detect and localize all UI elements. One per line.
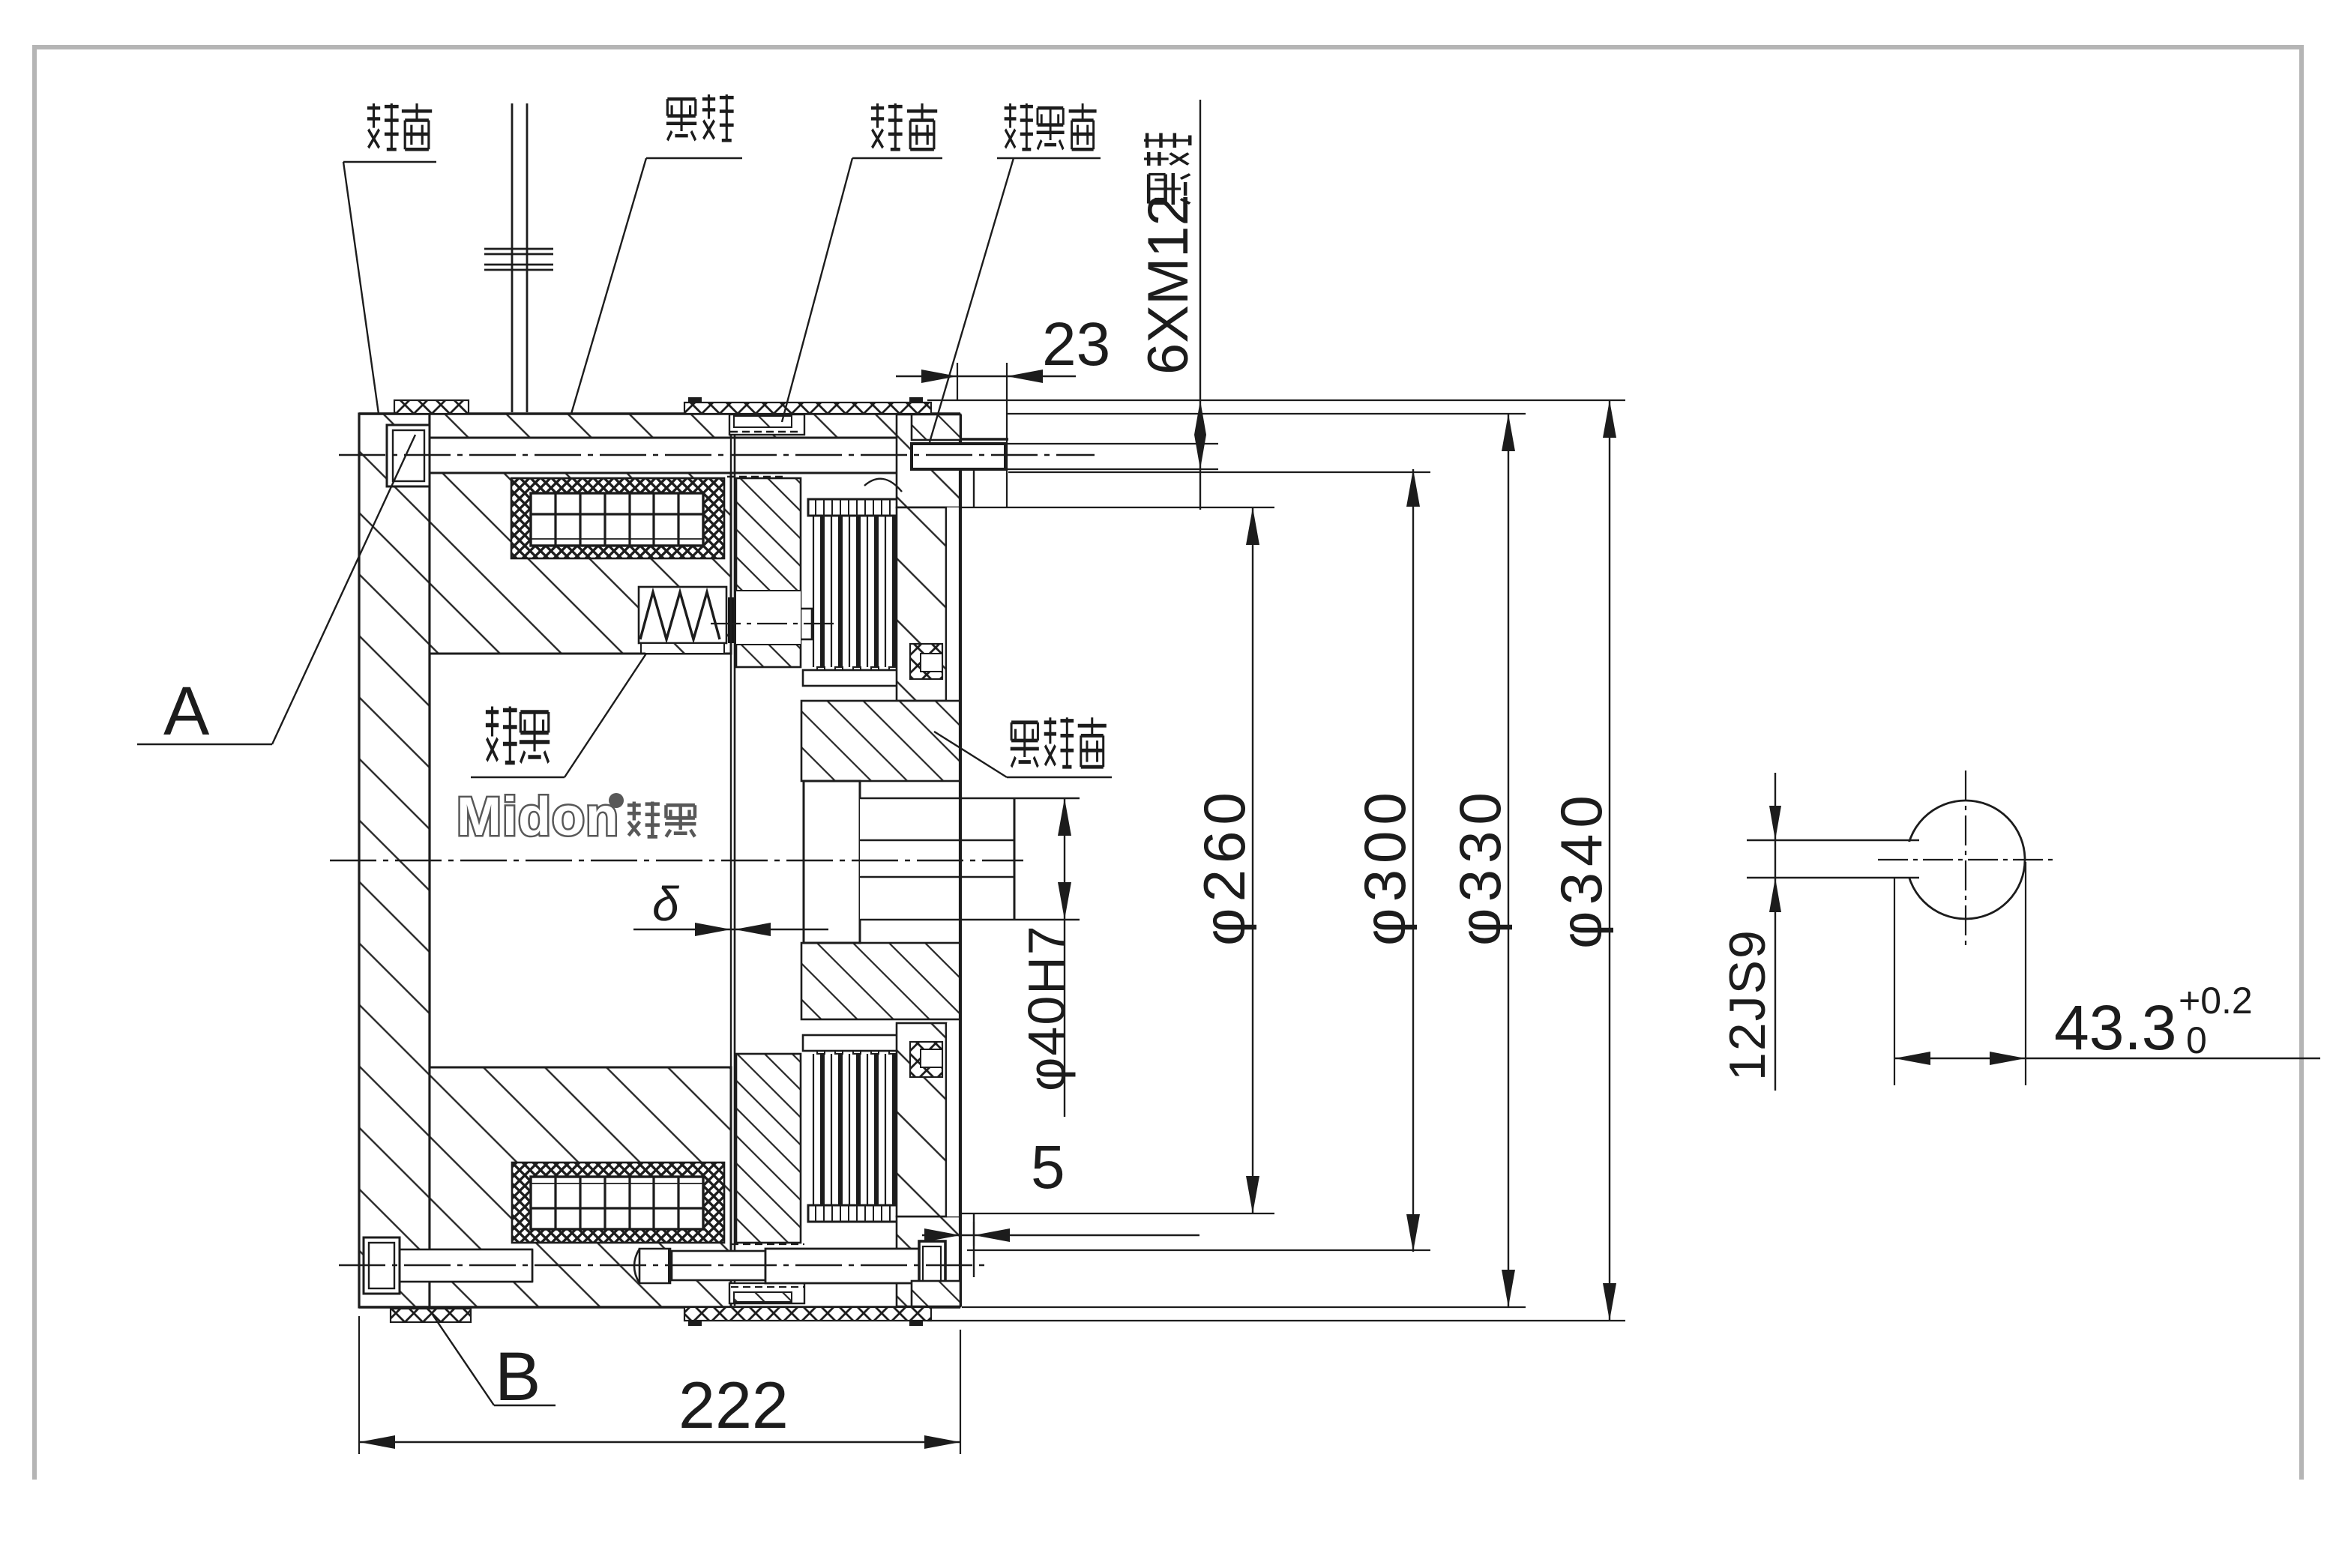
svg-text:5: 5: [1031, 1133, 1065, 1201]
svg-text:φ40H7: φ40H7: [1017, 924, 1076, 1091]
svg-text:φ260: φ260: [1191, 786, 1257, 946]
svg-text:A: A: [163, 673, 210, 750]
svg-text:φ300: φ300: [1352, 786, 1418, 946]
svg-text:12JS9: 12JS9: [1719, 929, 1776, 1081]
svg-text:43.3: 43.3: [2054, 992, 2177, 1063]
svg-text:Midon: Midon: [457, 787, 619, 847]
svg-text:0: 0: [2186, 1019, 2207, 1061]
svg-text:φ330: φ330: [1447, 786, 1513, 946]
svg-text:222: 222: [678, 1368, 789, 1442]
svg-text:23: 23: [1042, 310, 1110, 379]
svg-text:6XM12: 6XM12: [1137, 194, 1200, 375]
svg-text:+0.2: +0.2: [2179, 980, 2253, 1022]
svg-text:φ340: φ340: [1548, 789, 1614, 949]
svg-text:B: B: [495, 1339, 541, 1415]
svg-text:δ: δ: [652, 877, 680, 931]
